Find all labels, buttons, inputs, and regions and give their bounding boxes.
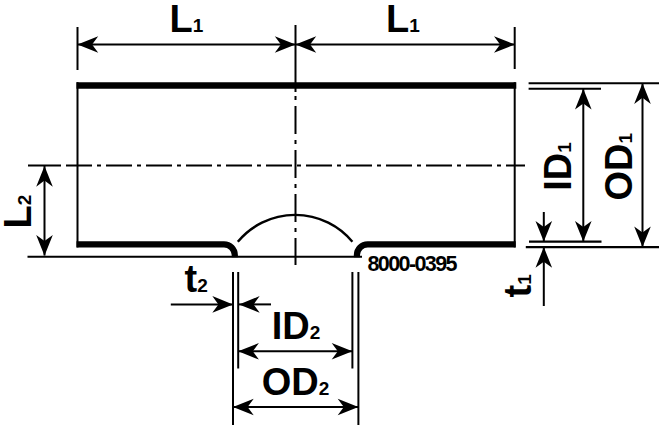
svg-text:8000-0395: 8000-0395	[368, 252, 458, 276]
